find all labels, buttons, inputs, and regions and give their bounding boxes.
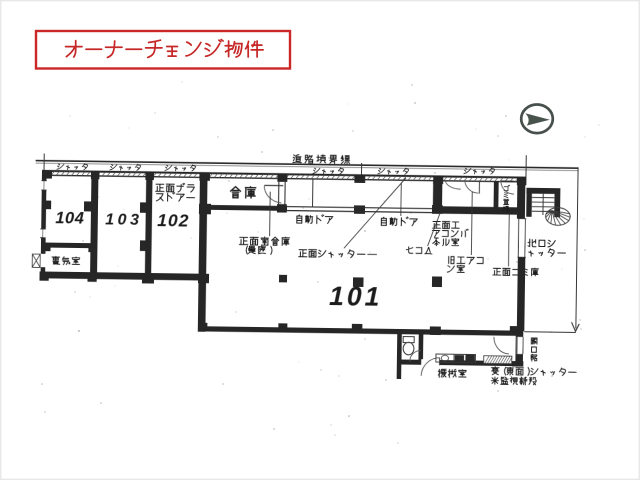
svg-text:103: 103 [105,211,142,229]
svg-text:102: 102 [157,210,189,230]
svg-text:101: 101 [329,281,383,312]
svg-text:104: 104 [55,209,84,227]
